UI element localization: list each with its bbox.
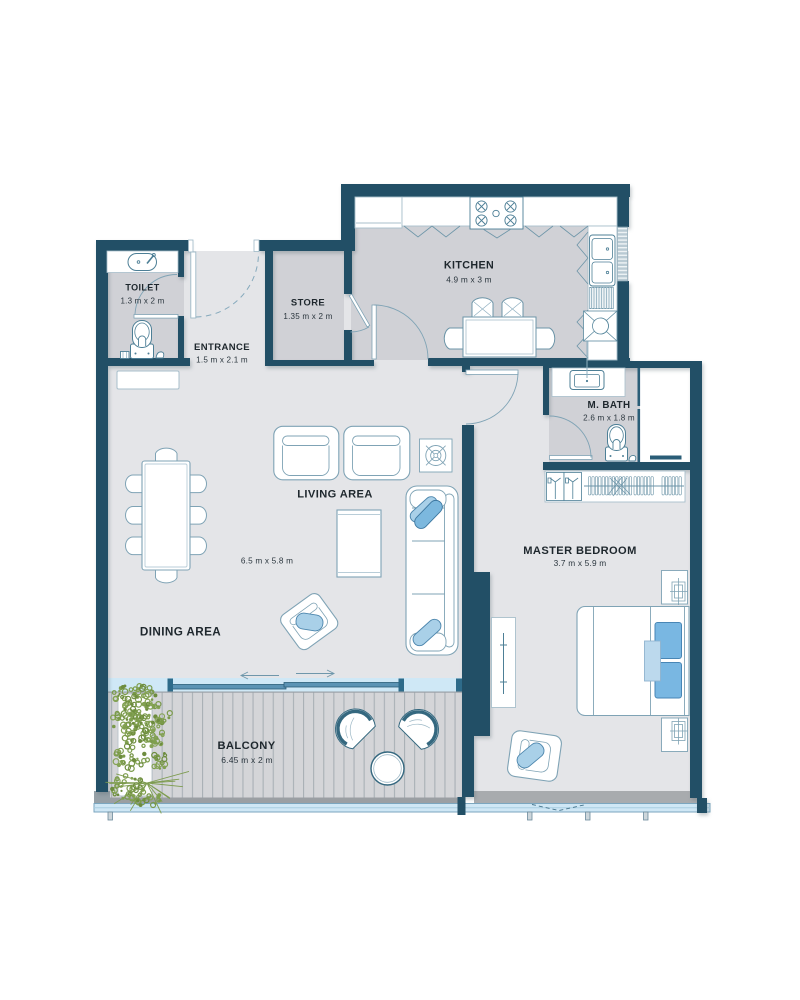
svg-text:BALCONY: BALCONY [217, 740, 275, 752]
svg-text:1.35 m x 2 m: 1.35 m x 2 m [283, 312, 332, 321]
svg-text:TOILET: TOILET [125, 283, 159, 293]
svg-text:1.5 m x 2.1 m: 1.5 m x 2.1 m [196, 356, 248, 365]
svg-text:2.6 m x 1.8 m: 2.6 m x 1.8 m [583, 414, 635, 423]
svg-text:ENTRANCE: ENTRANCE [194, 342, 250, 353]
svg-text:KITCHEN: KITCHEN [444, 260, 494, 272]
svg-text:DINING AREA: DINING AREA [140, 626, 221, 639]
svg-text:M. BATH: M. BATH [588, 400, 631, 411]
svg-text:6.45 m x 2 m: 6.45 m x 2 m [221, 755, 273, 765]
svg-text:LIVING AREA: LIVING AREA [297, 489, 373, 501]
svg-text:1.3 m x 2 m: 1.3 m x 2 m [121, 297, 165, 306]
svg-text:4.9 m x 3 m: 4.9 m x 3 m [446, 275, 492, 285]
svg-text:3.7 m x 5.9 m: 3.7 m x 5.9 m [554, 558, 607, 568]
svg-text:MASTER BEDROOM: MASTER BEDROOM [523, 545, 636, 557]
svg-text:6.5 m x 5.8 m: 6.5 m x 5.8 m [241, 557, 293, 566]
svg-text:STORE: STORE [291, 297, 325, 308]
